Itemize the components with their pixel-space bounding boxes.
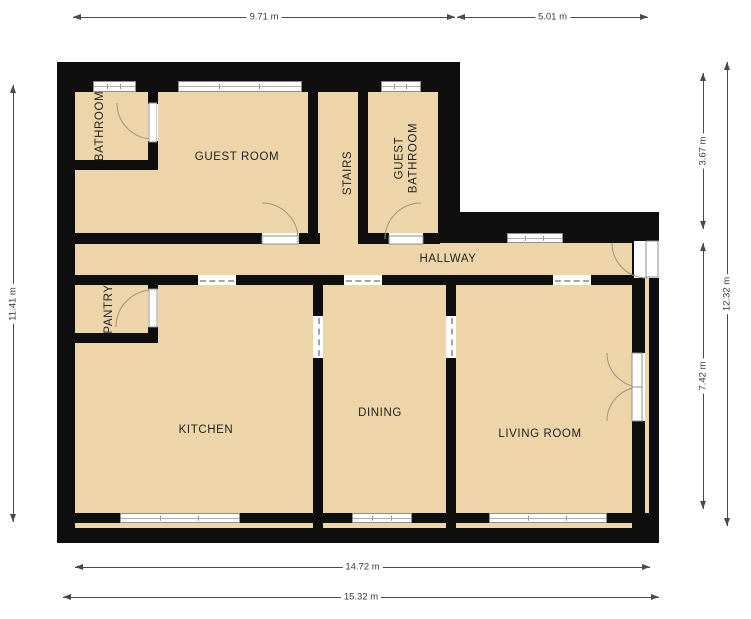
dimension-bottom-inner: 14.72 m xyxy=(75,561,650,573)
window-guest-room xyxy=(178,81,302,92)
dimension-right-lower: 7.42 m xyxy=(697,243,709,509)
opening-kitchen-dining xyxy=(313,316,323,358)
dimension-top-right: 5.01 m xyxy=(457,11,648,23)
bathroom-door xyxy=(115,101,157,143)
window-guest-bathroom xyxy=(381,81,421,92)
pantry-door xyxy=(114,288,158,330)
wall-left xyxy=(57,62,75,543)
dimension-right-upper: 3.67 m xyxy=(697,73,709,229)
wall-stairs-right xyxy=(358,92,368,233)
living-room-double-door xyxy=(604,350,646,424)
dimension-bottom-overall: 15.32 m xyxy=(63,591,659,603)
wall-hallway-south-3 xyxy=(382,275,553,285)
wall-hallway-south-2 xyxy=(236,275,344,285)
room-label-bathroom: BATHROOM xyxy=(94,91,106,161)
room-label-hallway: HALLWAY xyxy=(419,253,476,265)
window-living-room xyxy=(489,513,607,523)
room-label-living-room: LIVING ROOM xyxy=(498,428,581,440)
dimension-left: 11.41 m xyxy=(7,85,19,522)
room-label-pantry: PANTRY xyxy=(103,284,115,333)
opening-dining-living xyxy=(446,316,456,358)
window-hallway xyxy=(507,233,563,243)
window-dining xyxy=(352,513,412,523)
opening-kitchen-hallway xyxy=(198,275,236,285)
entrance-door xyxy=(606,237,660,281)
guest-bathroom-door xyxy=(384,201,426,245)
window-kitchen xyxy=(120,513,240,523)
opening-living-hallway xyxy=(553,275,591,285)
room-label-stairs: STAIRS xyxy=(342,151,354,195)
wall-cavity-bottom xyxy=(75,523,632,528)
room-label-guest-bathroom: GUEST BATHROOM xyxy=(393,116,422,200)
wall-hallway-south-1 xyxy=(75,275,198,285)
wall-pantry-bottom xyxy=(57,333,158,343)
wall-hallway-north-1 xyxy=(75,233,262,244)
wall-bathroom-bottom xyxy=(57,160,158,170)
floor-plan-canvas: BATHROOM GUEST ROOM STAIRS GUEST BATHROO… xyxy=(0,0,751,619)
room-label-kitchen: KITCHEN xyxy=(179,424,234,436)
dimension-right-overall: 12.32 m xyxy=(721,62,733,526)
room-label-guest-room: GUEST ROOM xyxy=(195,151,279,163)
room-label-dining: DINING xyxy=(358,407,402,419)
opening-dining-hallway xyxy=(344,275,382,285)
guest-room-door xyxy=(260,201,300,245)
dimension-top-left: 9.71 m xyxy=(73,11,455,23)
wall-stairs-left xyxy=(308,92,318,233)
wall-hallway-north-2 xyxy=(299,233,320,244)
